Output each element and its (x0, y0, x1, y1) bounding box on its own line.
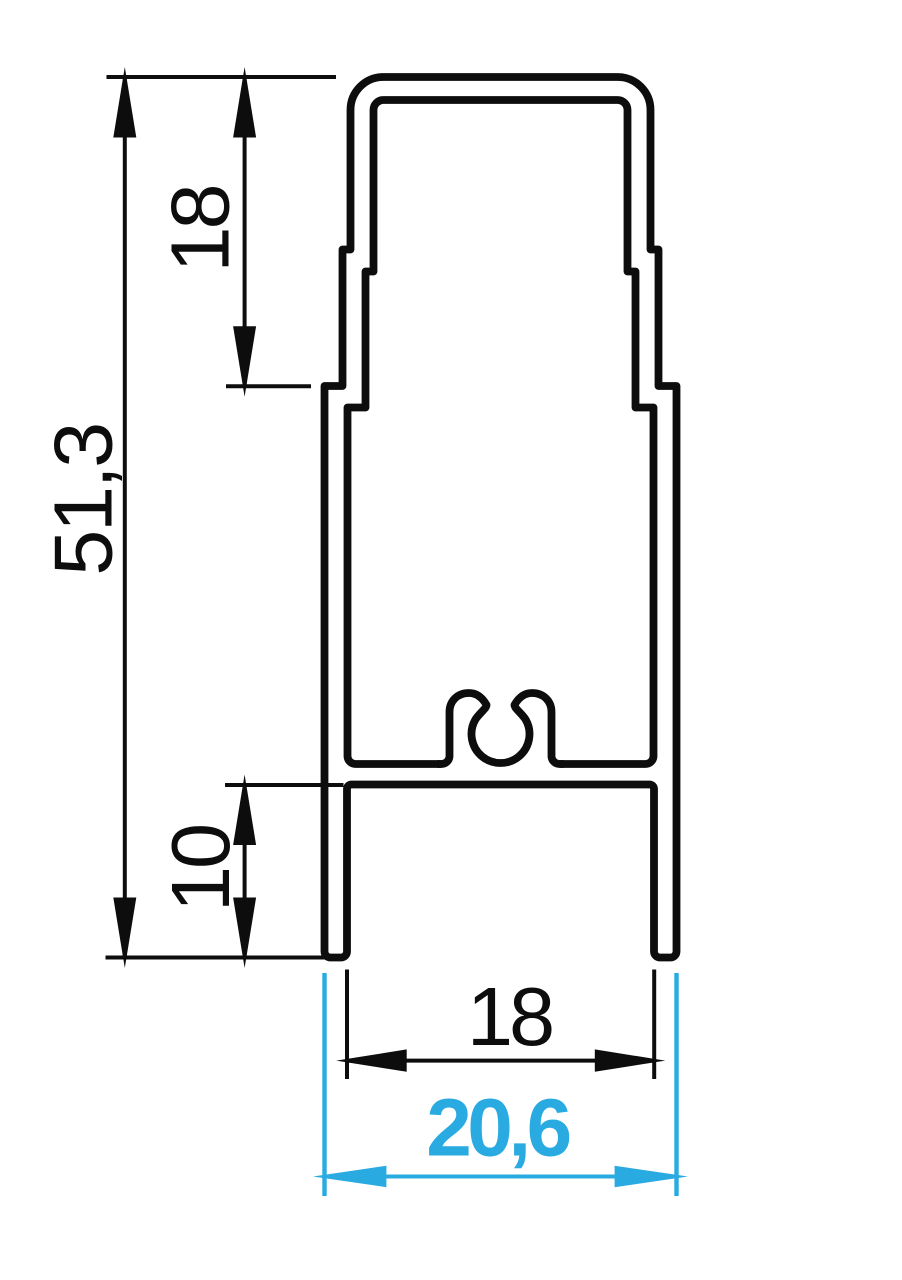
svg-text:10: 10 (154, 826, 247, 912)
svg-text:18: 18 (467, 970, 552, 1063)
svg-text:20,6: 20,6 (426, 1083, 569, 1174)
svg-text:18: 18 (154, 186, 247, 272)
svg-text:51,3: 51,3 (37, 424, 130, 576)
